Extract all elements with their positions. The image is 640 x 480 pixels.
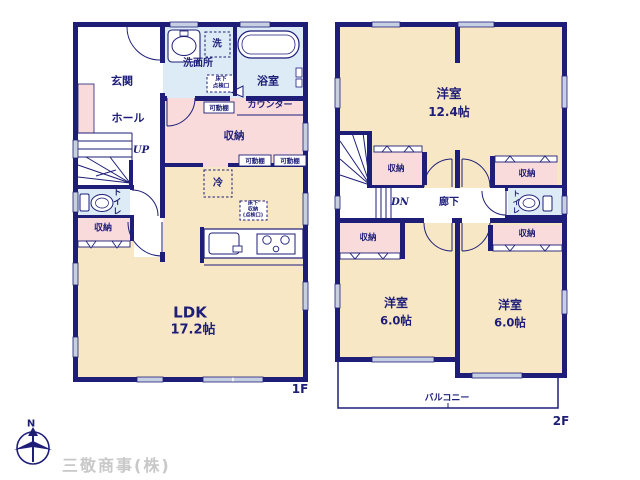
label-storage-2f-tl: 収納 bbox=[387, 165, 404, 174]
label-stairs-up: UP bbox=[133, 146, 149, 156]
label-washroom: 洗面所 bbox=[183, 59, 213, 69]
label-movable-shelf-3: 可動棚 bbox=[280, 158, 300, 165]
label-bedroom-left-name: 洋室 bbox=[384, 297, 408, 309]
label-bedroom12-size: 12.4帖 bbox=[428, 106, 470, 118]
label-bedroom-right-name: 洋室 bbox=[498, 299, 522, 311]
label-corridor: 廊下 bbox=[439, 198, 459, 208]
floorplan-drawing bbox=[0, 0, 640, 480]
label-balcony: バルコニー bbox=[425, 395, 470, 404]
label-storage-2f-br: 収納 bbox=[518, 230, 535, 239]
label-movable-shelf-2: 可動棚 bbox=[245, 158, 265, 165]
label-counter: カウンター bbox=[247, 102, 292, 111]
label-storage-1f: 収納 bbox=[224, 131, 245, 142]
label-stairs-down: DN bbox=[391, 198, 409, 208]
label-entrance: 玄関 bbox=[111, 76, 133, 87]
label-storage-2f-tr: 収納 bbox=[518, 170, 535, 179]
label-underfloor-storage: 床下 収納 (点検口) bbox=[243, 201, 263, 220]
label-bedroom-right-size: 6.0帖 bbox=[494, 317, 526, 329]
compass-north-label: N bbox=[27, 419, 35, 430]
label-washer: 洗 bbox=[212, 39, 222, 49]
label-storage-2f-bl: 収納 bbox=[359, 234, 376, 243]
label-toilet-storage: 収納 bbox=[94, 225, 112, 234]
company-name: 三敬商事(株) bbox=[62, 452, 171, 476]
compass-icon bbox=[14, 427, 52, 464]
label-bedroom-left-size: 6.0帖 bbox=[380, 315, 412, 327]
underfloor-storage-line3: (点検口) bbox=[243, 213, 263, 219]
floor2-toilet-fixture bbox=[519, 195, 553, 211]
label-movable-shelf-1: 可動棚 bbox=[209, 105, 229, 112]
label-floor1: 1F bbox=[292, 383, 309, 395]
label-floor2: 2F bbox=[553, 415, 570, 427]
label-hall: ホール bbox=[112, 113, 145, 124]
label-underfloor-hatch: 床下 点検口 bbox=[213, 76, 230, 89]
label-fridge: 冷 bbox=[213, 179, 223, 189]
floorplan-page: 玄関 ホール UP トイレ 収納 洗面所 洗 床下 点検口 浴室 可動棚 カウン… bbox=[0, 0, 640, 480]
label-bathroom: 浴室 bbox=[257, 76, 279, 87]
label-ldk: LDK bbox=[173, 306, 207, 321]
label-toilet-2f: トイレ bbox=[512, 189, 520, 215]
underfloor-hatch-line1: 床下 bbox=[215, 76, 226, 83]
label-bedroom12-name: 洋室 bbox=[436, 88, 461, 101]
underfloor-hatch-line2: 点検口 bbox=[213, 83, 230, 90]
label-ldk-size: 17.2帖 bbox=[170, 324, 215, 337]
label-toilet-1f: トイレ bbox=[112, 188, 121, 217]
